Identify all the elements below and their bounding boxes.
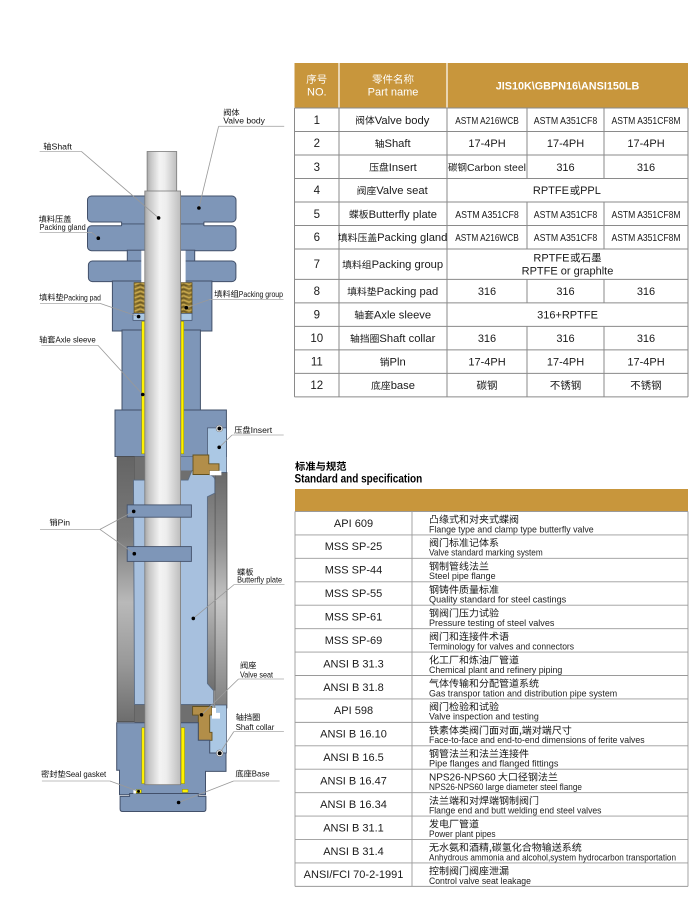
svg-text:Packing group: Packing group <box>239 289 283 299</box>
svg-text:2: 2 <box>314 138 320 150</box>
svg-text:ANSI B 16.10: ANSI B 16.10 <box>320 729 387 741</box>
svg-text:ANSI B 16.47: ANSI B 16.47 <box>320 776 387 788</box>
svg-text:Valve inspection and testing: Valve inspection and testing <box>429 712 539 722</box>
svg-text:316: 316 <box>637 333 655 345</box>
svg-text:base: base <box>391 380 415 392</box>
svg-text:PPL: PPL <box>580 185 601 197</box>
svg-text:316: 316 <box>556 162 574 174</box>
svg-text:ANSI B 31.4: ANSI B 31.4 <box>323 846 384 858</box>
svg-text:Butterfly plate: Butterfly plate <box>237 575 282 585</box>
svg-text:Pressure testing of steel valv: Pressure testing of steel valves <box>429 618 555 628</box>
svg-text:NO.: NO. <box>307 87 327 99</box>
svg-text:JIS10K\GBPN16\ANSI150LB: JIS10K\GBPN16\ANSI150LB <box>496 81 640 93</box>
svg-text:ASTM A351CF8: ASTM A351CF8 <box>455 210 519 221</box>
svg-text:Control valve seat leakage: Control valve seat leakage <box>429 876 531 886</box>
svg-text:Pipe flanges and flanged fitti: Pipe flanges and flanged fittings <box>429 759 559 769</box>
svg-text:316: 316 <box>637 286 655 298</box>
svg-text:MSS SP-44: MSS SP-44 <box>325 565 382 577</box>
svg-text:MSS SP-69: MSS SP-69 <box>325 635 382 647</box>
svg-text:ANSI B 16.34: ANSI B 16.34 <box>320 799 387 811</box>
svg-text:Pln: Pln <box>390 357 406 369</box>
svg-text:Shaft: Shaft <box>385 138 412 150</box>
svg-text:Flange type and clamp type but: Flange type and clamp type butterfly val… <box>429 524 594 534</box>
svg-text:RPTFE: RPTFE <box>533 253 569 265</box>
svg-text:MSS SP-55: MSS SP-55 <box>325 588 382 600</box>
svg-text:Power plant pipes: Power plant pipes <box>429 829 496 839</box>
svg-text:Packing pad: Packing pad <box>377 286 439 298</box>
svg-text:ASTM A351CF8: ASTM A351CF8 <box>534 116 598 127</box>
svg-text:Valve body: Valve body <box>223 116 265 126</box>
svg-text:Packing pad: Packing pad <box>64 292 101 302</box>
svg-text:Chemical plant and refinery pi: Chemical plant and refinery piping <box>429 665 562 675</box>
svg-text:7: 7 <box>314 259 320 271</box>
svg-text:316: 316 <box>637 162 655 174</box>
svg-text:Shaft collar: Shaft collar <box>236 722 275 732</box>
svg-text:17-4PH: 17-4PH <box>627 138 664 150</box>
svg-text:ANSI B 31.1: ANSI B 31.1 <box>323 822 384 834</box>
svg-text:MSS SP-61: MSS SP-61 <box>325 612 382 624</box>
svg-text:ANSI B 31.3: ANSI B 31.3 <box>323 658 384 670</box>
svg-text:ASTM A216WCB: ASTM A216WCB <box>455 233 519 244</box>
svg-text:17-4PH: 17-4PH <box>468 138 505 150</box>
svg-text:3: 3 <box>314 162 320 174</box>
svg-text:12: 12 <box>310 380 323 392</box>
svg-text:10: 10 <box>310 333 323 345</box>
svg-text:Packing gland: Packing gland <box>377 232 447 244</box>
svg-text:1: 1 <box>314 115 320 127</box>
svg-text:Anhydrous ammonia and alcohol,: Anhydrous ammonia and alcohol,system hyd… <box>429 852 676 862</box>
svg-text:ASTM A351CF8M: ASTM A351CF8M <box>612 116 681 127</box>
svg-text:Base: Base <box>252 769 270 779</box>
svg-text:RPTFE or graphlte: RPTFE or graphlte <box>522 266 614 278</box>
svg-text:6: 6 <box>314 232 320 244</box>
svg-text:5: 5 <box>314 209 320 221</box>
svg-text:Shaft: Shaft <box>52 141 73 151</box>
svg-text:Steel pipe flange: Steel pipe flange <box>429 571 496 581</box>
svg-text:Axle sleeve: Axle sleeve <box>374 310 431 322</box>
svg-text:9: 9 <box>314 310 320 322</box>
svg-text:Seal gasket: Seal gasket <box>66 769 107 779</box>
svg-text:Packing gland: Packing gland <box>40 222 86 232</box>
svg-text:Gas transpor tation and distri: Gas transpor tation and distribution pip… <box>429 688 618 698</box>
svg-text:API 598: API 598 <box>334 705 373 717</box>
svg-text:Valve standard marking system: Valve standard marking system <box>429 548 543 558</box>
svg-text:ANSI B 31.8: ANSI B 31.8 <box>323 682 384 694</box>
svg-text:ANSI/FCI 70-2-1991: ANSI/FCI 70-2-1991 <box>304 869 404 881</box>
svg-text:316+RPTFE: 316+RPTFE <box>537 310 598 322</box>
svg-text:316: 316 <box>478 286 496 298</box>
svg-text:ASTM A216WCB: ASTM A216WCB <box>455 116 519 127</box>
svg-text:Flange end and butt welding en: Flange end and butt welding end steel va… <box>429 806 602 816</box>
svg-text:316: 316 <box>556 286 574 298</box>
svg-text:Face-to-face and end-to-end di: Face-to-face and end-to-end dimensions o… <box>429 735 645 745</box>
svg-text:11: 11 <box>311 357 323 369</box>
svg-text:Packing group: Packing group <box>372 259 444 271</box>
svg-text:Valve seat: Valve seat <box>240 669 274 679</box>
svg-text:Carbon steel: Carbon steel <box>467 163 526 174</box>
svg-text:17-4PH: 17-4PH <box>547 138 584 150</box>
svg-text:Valve seat: Valve seat <box>376 185 428 197</box>
svg-text:Standard and specification: Standard and specification <box>295 474 423 486</box>
svg-text:Insert: Insert <box>251 425 273 435</box>
svg-text:17-4PH: 17-4PH <box>547 357 584 369</box>
svg-text:Insert: Insert <box>389 162 418 174</box>
svg-text:ASTM A351CF8: ASTM A351CF8 <box>534 210 598 221</box>
svg-text:NPS26-NPS60 large diameter ste: NPS26-NPS60 large diameter steel flange <box>429 782 582 792</box>
svg-text:17-4PH: 17-4PH <box>627 357 664 369</box>
svg-text:API 609: API 609 <box>334 518 373 530</box>
svg-text:316: 316 <box>556 333 574 345</box>
svg-text:Part name: Part name <box>368 87 419 99</box>
svg-text:Shaft collar: Shaft collar <box>379 333 435 345</box>
svg-text:4: 4 <box>314 185 321 197</box>
svg-text:8: 8 <box>314 286 320 298</box>
svg-text:MSS SP-25: MSS SP-25 <box>325 541 382 553</box>
svg-text:ASTM A351CF8M: ASTM A351CF8M <box>612 210 681 221</box>
svg-text:Axle sleeve: Axle sleeve <box>56 335 96 345</box>
svg-text:Terminology for valves and con: Terminology for valves and connectors <box>429 641 574 651</box>
svg-text:Pin: Pin <box>58 517 71 527</box>
svg-text:Valve body: Valve body <box>375 115 430 127</box>
svg-text:316: 316 <box>478 333 496 345</box>
svg-text:ANSI B 16.5: ANSI B 16.5 <box>323 752 384 764</box>
svg-text:ASTM A351CF8: ASTM A351CF8 <box>534 233 598 244</box>
svg-text:RPTFE: RPTFE <box>533 185 569 197</box>
svg-text:17-4PH: 17-4PH <box>468 357 505 369</box>
svg-text:ASTM A351CF8M: ASTM A351CF8M <box>612 233 681 244</box>
svg-text:Quality standard for steel cas: Quality standard for steel castings <box>429 595 567 605</box>
svg-text:Butterfly plate: Butterfly plate <box>369 209 437 221</box>
